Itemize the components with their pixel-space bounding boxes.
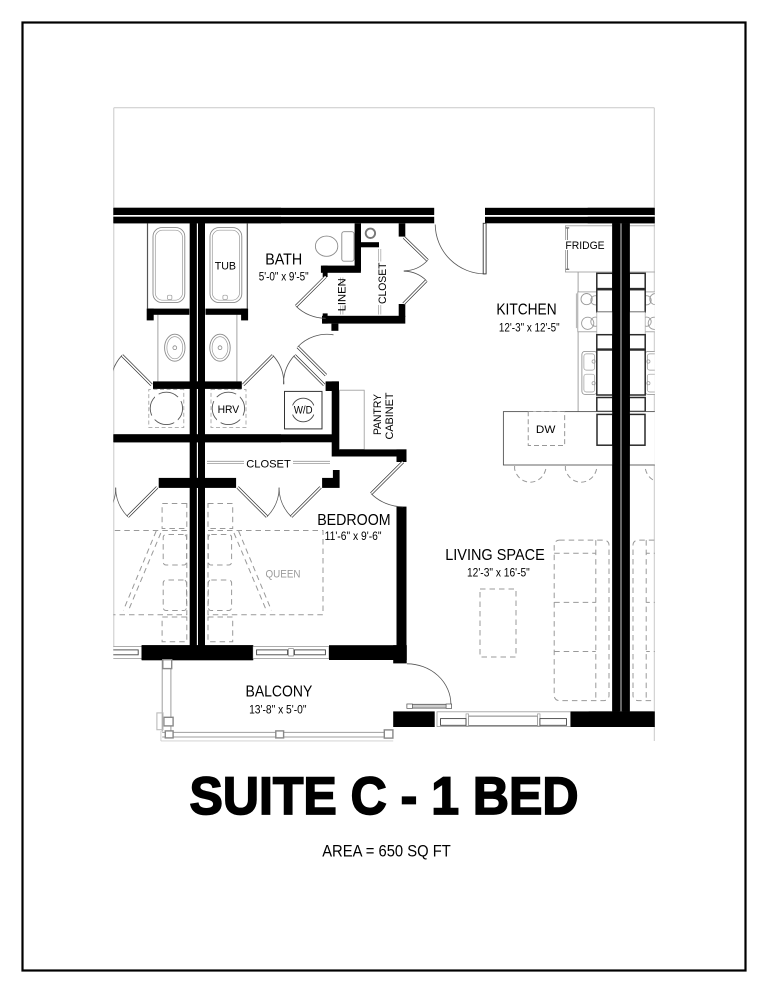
svg-text:5'-0" x 9'-5": 5'-0" x 9'-5" bbox=[259, 270, 309, 284]
svg-text:AREA = 650 SQ FT: AREA = 650 SQ FT bbox=[322, 842, 451, 861]
svg-text:W/D: W/D bbox=[294, 404, 313, 416]
svg-text:LIVING SPACE: LIVING SPACE bbox=[445, 547, 545, 564]
svg-text:CABINET: CABINET bbox=[384, 392, 396, 439]
svg-text:HRV: HRV bbox=[218, 404, 240, 416]
svg-text:FRIDGE: FRIDGE bbox=[565, 240, 605, 252]
svg-text:PANTRY: PANTRY bbox=[372, 394, 384, 435]
svg-text:LINEN: LINEN bbox=[336, 278, 348, 311]
svg-text:11'-6" x 9'-6": 11'-6" x 9'-6" bbox=[325, 529, 382, 543]
svg-text:CLOSET: CLOSET bbox=[377, 262, 389, 304]
svg-text:BALCONY: BALCONY bbox=[246, 684, 313, 701]
svg-text:BATH: BATH bbox=[265, 252, 302, 269]
svg-text:DW: DW bbox=[536, 424, 556, 436]
svg-text:13'-8" x 5'-0": 13'-8" x 5'-0" bbox=[249, 703, 306, 717]
svg-text:SUITE C - 1 BED: SUITE C - 1 BED bbox=[190, 767, 579, 826]
svg-text:12'-3" x 12'-5": 12'-3" x 12'-5" bbox=[499, 321, 560, 335]
svg-text:TUB: TUB bbox=[215, 261, 236, 273]
svg-text:12'-3" x 16'-5": 12'-3" x 16'-5" bbox=[467, 566, 530, 580]
svg-text:KITCHEN: KITCHEN bbox=[496, 301, 556, 318]
svg-text:QUEEN: QUEEN bbox=[266, 568, 301, 580]
svg-text:BEDROOM: BEDROOM bbox=[317, 512, 390, 529]
svg-text:CLOSET: CLOSET bbox=[246, 459, 291, 471]
